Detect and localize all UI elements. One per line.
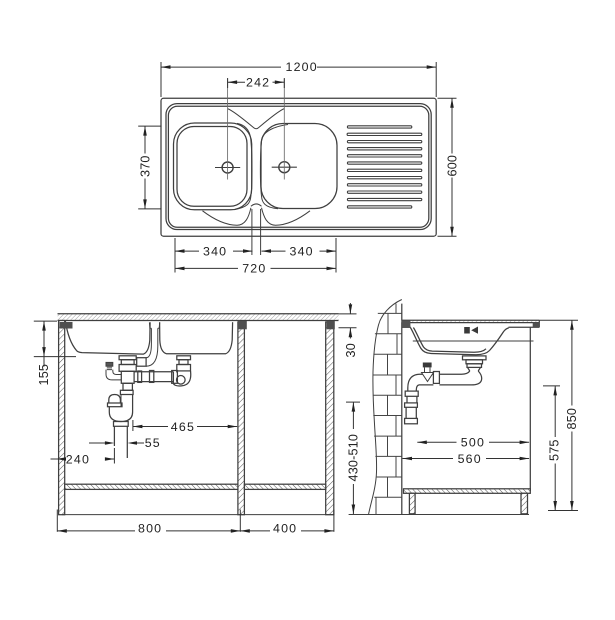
svg-text:720: 720 xyxy=(242,262,266,276)
svg-text:242: 242 xyxy=(246,76,270,90)
svg-text:340: 340 xyxy=(290,244,314,258)
svg-text:340: 340 xyxy=(203,244,227,258)
svg-text:465: 465 xyxy=(171,420,195,434)
svg-text:370: 370 xyxy=(138,155,152,177)
svg-text:240: 240 xyxy=(66,452,90,466)
svg-text:1200: 1200 xyxy=(286,60,318,74)
svg-text:400: 400 xyxy=(273,521,297,535)
svg-text:800: 800 xyxy=(138,521,162,535)
svg-text:430-510: 430-510 xyxy=(346,434,360,482)
svg-text:575: 575 xyxy=(547,439,561,461)
svg-text:30: 30 xyxy=(344,343,358,357)
svg-text:500: 500 xyxy=(461,436,485,450)
svg-text:600: 600 xyxy=(446,155,460,177)
svg-text:55: 55 xyxy=(145,436,161,450)
svg-text:850: 850 xyxy=(565,408,579,430)
svg-text:560: 560 xyxy=(458,452,482,466)
svg-text:155: 155 xyxy=(37,364,51,386)
